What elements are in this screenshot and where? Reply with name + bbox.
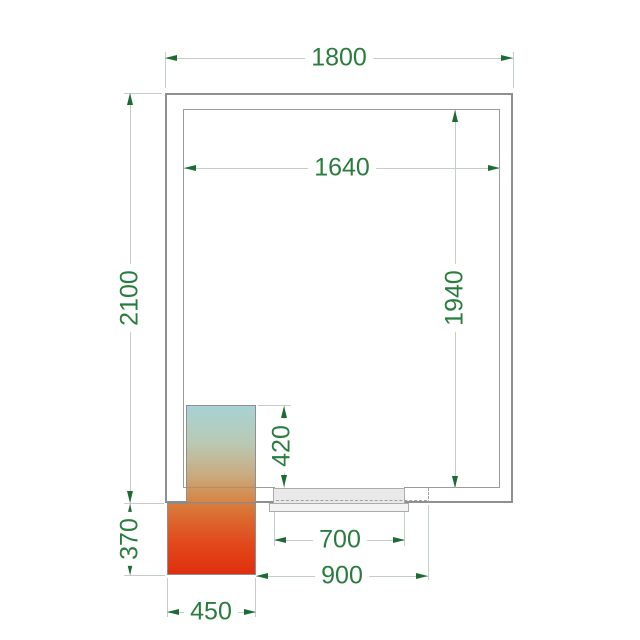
dim-1640-arrow-right-icon (488, 165, 500, 171)
dim-900-arrow-left-icon (256, 573, 268, 579)
door-centerline (276, 500, 427, 501)
dim-420-arrow-bottom-icon (281, 475, 287, 487)
dim-1800-label: 1800 (305, 45, 373, 72)
dim-700-arrow-left-icon (274, 537, 286, 543)
dim-900-ext-right (428, 505, 429, 580)
dim-1640-arrow-left-icon (184, 165, 196, 171)
dim-1640-label: 1640 (308, 155, 376, 182)
cooling-unit-outer-part (167, 503, 256, 575)
dim-2100-label: 2100 (117, 264, 144, 332)
dim-900-label: 900 (315, 563, 369, 590)
dim-2100-arrow-top-icon (127, 93, 133, 105)
dim-420-label: 420 (269, 419, 296, 473)
dim-2100-arrow-bottom-icon (127, 491, 133, 503)
dim-370-ext-bottom (124, 575, 165, 576)
dim-700-label: 700 (313, 527, 367, 554)
wall-line-through-unit-inner (187, 487, 255, 488)
dim-370-label: 370 (117, 512, 144, 566)
dim-450-label: 450 (184, 599, 238, 626)
dim-1800-arrow-left-icon (165, 55, 177, 61)
technical-drawing-canvas: 1800 1640 2100 1940 420 370 700 900 450 (0, 0, 640, 640)
door-leaf-inner (273, 488, 405, 504)
dim-450-arrow-left-icon (167, 609, 179, 615)
door-leaf-outer (269, 503, 409, 512)
dim-1940-label: 1940 (442, 264, 469, 332)
dim-700-arrow-right-icon (393, 537, 405, 543)
wall-line-through-unit-outer (168, 502, 255, 503)
dim-1940-arrow-bottom-icon (452, 476, 458, 488)
dim-450-arrow-right-icon (244, 609, 256, 615)
dim-1800-arrow-right-icon (501, 55, 513, 61)
dim-420-arrow-top-icon (281, 406, 287, 418)
door-frame-hidden-edge (428, 488, 429, 503)
dim-900-arrow-right-icon (416, 573, 428, 579)
cooling-unit-inner-part (186, 405, 256, 504)
dim-1940-arrow-top-icon (452, 110, 458, 122)
